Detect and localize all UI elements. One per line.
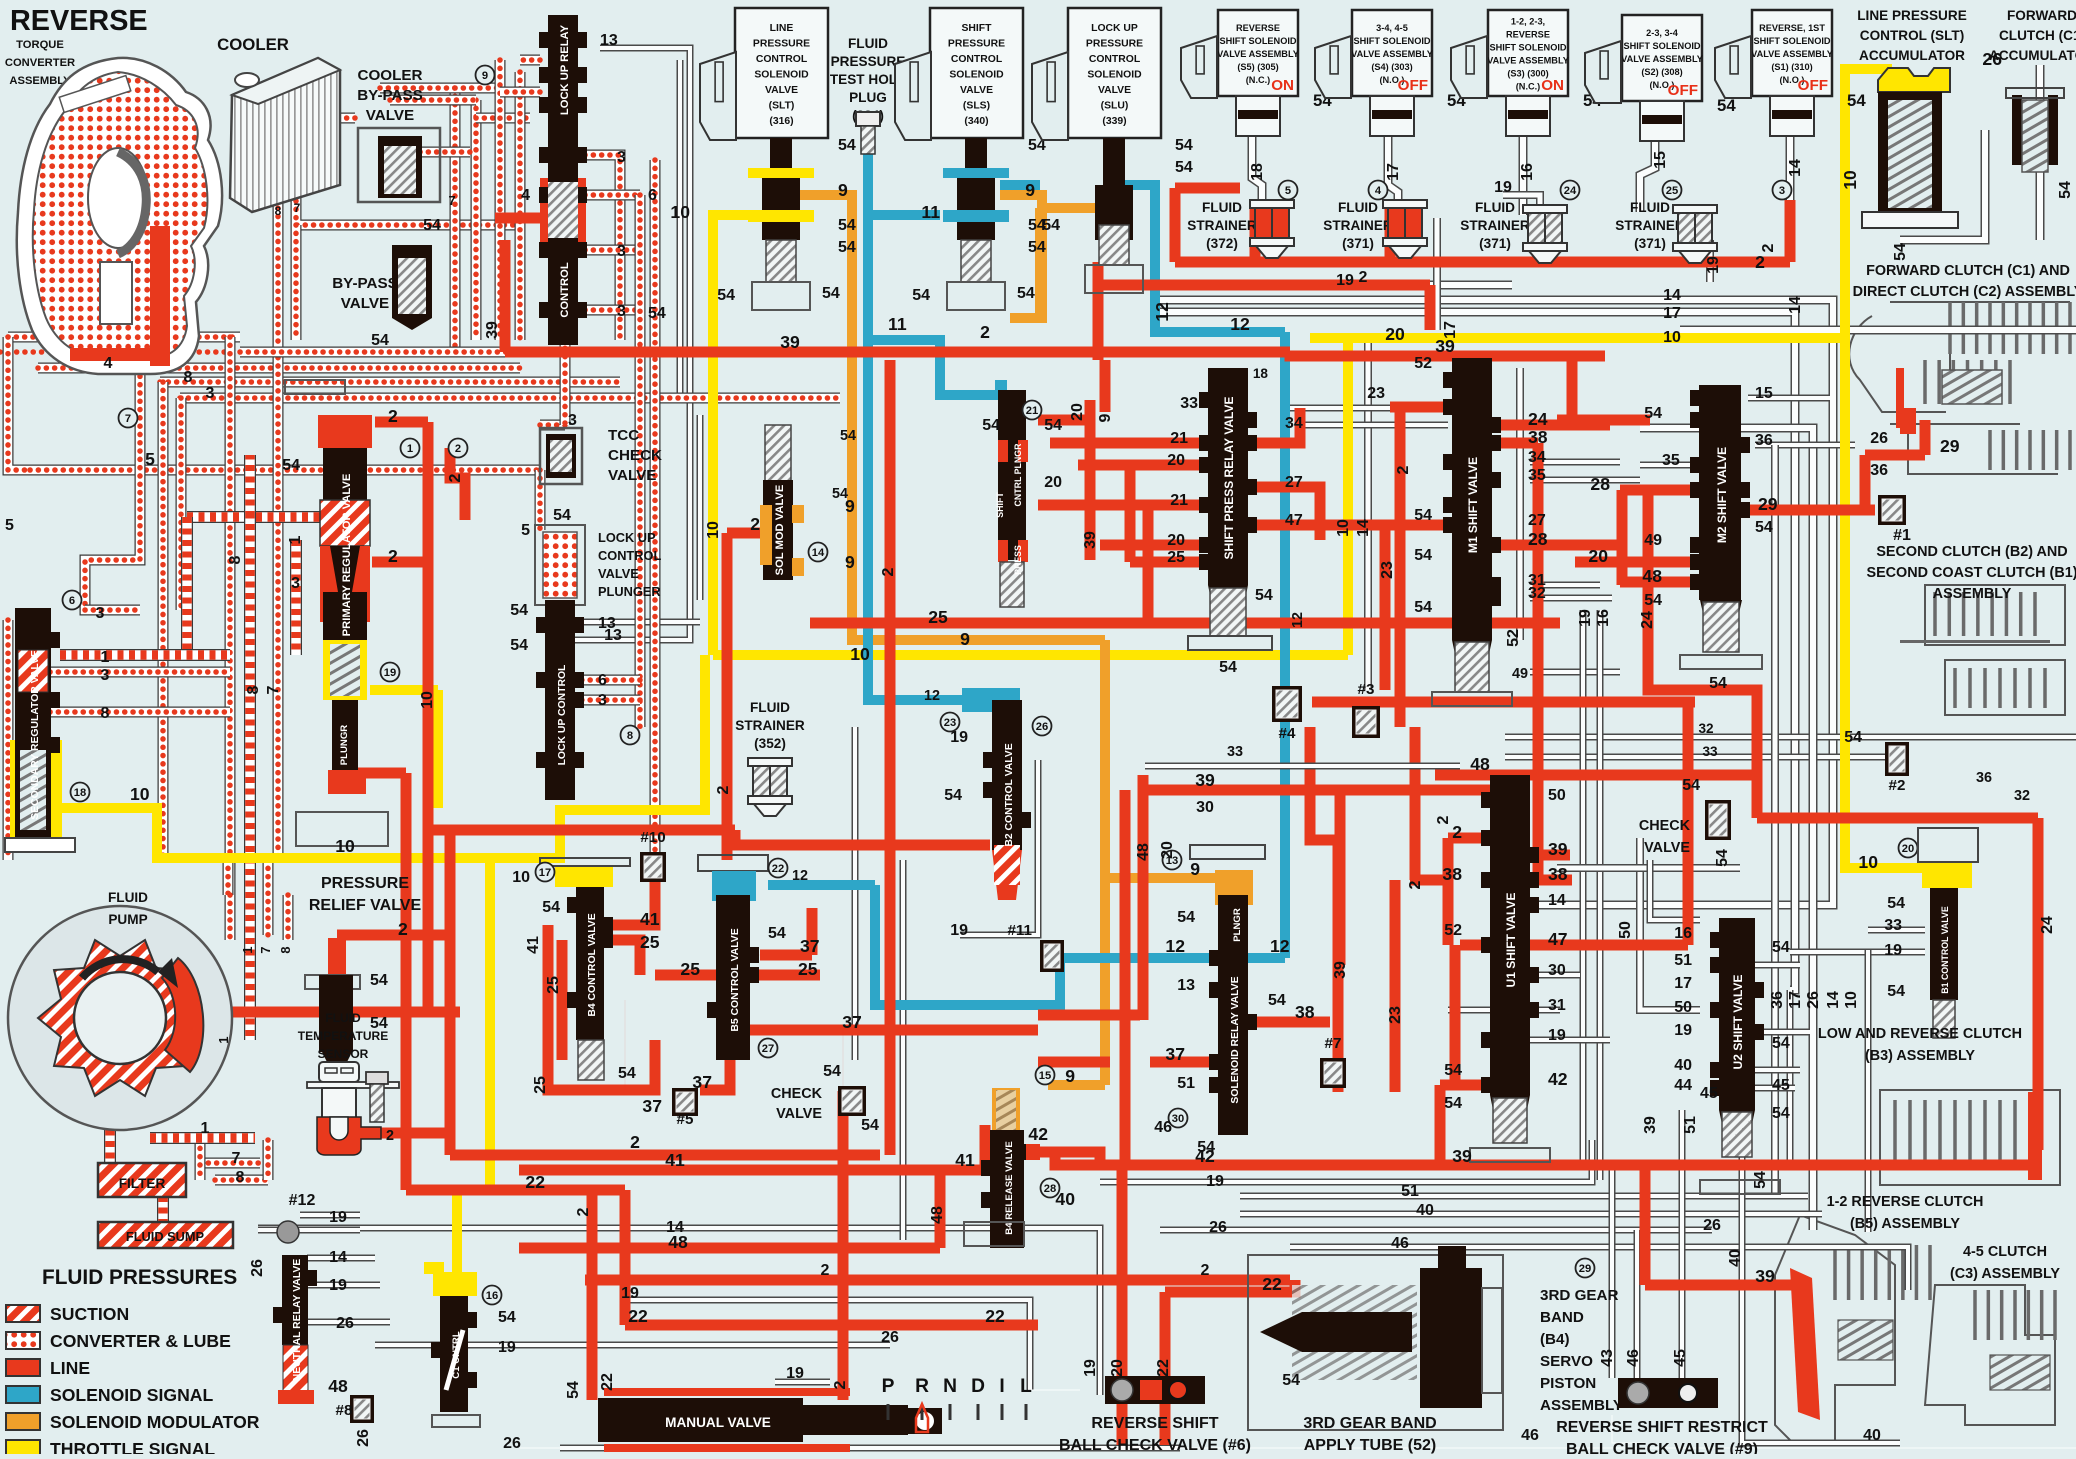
svg-text:ASSEMBLY: ASSEMBLY bbox=[1933, 586, 2012, 602]
svg-text:PUMP: PUMP bbox=[108, 912, 147, 927]
svg-text:P: P bbox=[882, 1376, 895, 1397]
svg-text:54: 54 bbox=[423, 217, 441, 234]
svg-text:54: 54 bbox=[618, 1065, 636, 1082]
svg-text:FORWARD: FORWARD bbox=[2007, 8, 2076, 23]
svg-text:2: 2 bbox=[1395, 465, 1412, 474]
svg-text:CONVERTER & LUBE: CONVERTER & LUBE bbox=[50, 1331, 231, 1351]
svg-text:STRAINER: STRAINER bbox=[1460, 218, 1530, 233]
svg-text:VALVE: VALVE bbox=[960, 85, 993, 96]
svg-text:7: 7 bbox=[294, 201, 301, 215]
svg-text:10: 10 bbox=[1858, 852, 1878, 872]
svg-text:20: 20 bbox=[1588, 546, 1608, 566]
svg-text:7: 7 bbox=[258, 946, 273, 953]
svg-text:37: 37 bbox=[842, 1012, 862, 1032]
svg-text:26: 26 bbox=[355, 1429, 372, 1447]
svg-text:SOL MOD VALVE: SOL MOD VALVE bbox=[774, 484, 786, 575]
svg-text:22: 22 bbox=[628, 1306, 648, 1326]
svg-text:LOW AND REVERSE CLUTCH: LOW AND REVERSE CLUTCH bbox=[1818, 1026, 2022, 1042]
svg-text:(S2) (308): (S2) (308) bbox=[1641, 67, 1682, 77]
svg-text:BALL CHECK VALVE (#6): BALL CHECK VALVE (#6) bbox=[1059, 1437, 1251, 1454]
svg-text:2-3, 3-4: 2-3, 3-4 bbox=[1646, 28, 1679, 38]
svg-text:54: 54 bbox=[1414, 599, 1432, 616]
svg-text:30: 30 bbox=[1172, 1113, 1184, 1125]
svg-text:(B3) ASSEMBLY: (B3) ASSEMBLY bbox=[1865, 1048, 1975, 1064]
svg-text:ACCUMULATOR: ACCUMULATOR bbox=[1989, 48, 2076, 63]
svg-text:54: 54 bbox=[1847, 91, 1866, 110]
svg-text:MANUAL VALVE: MANUAL VALVE bbox=[665, 1415, 771, 1430]
svg-text:#1: #1 bbox=[1893, 527, 1911, 544]
svg-text:26: 26 bbox=[1805, 991, 1822, 1009]
svg-text:19: 19 bbox=[1206, 1173, 1224, 1190]
svg-text:19: 19 bbox=[1577, 609, 1594, 627]
svg-text:8: 8 bbox=[101, 705, 110, 722]
svg-text:VALVE ASSEMBLY: VALVE ASSEMBLY bbox=[1217, 49, 1299, 59]
svg-text:#7: #7 bbox=[1325, 1035, 1342, 1052]
svg-text:7: 7 bbox=[125, 413, 131, 425]
svg-text:(S4) (303): (S4) (303) bbox=[1371, 62, 1412, 72]
svg-text:26: 26 bbox=[881, 1329, 899, 1346]
svg-text:PRESSURE: PRESSURE bbox=[321, 875, 409, 892]
svg-text:51: 51 bbox=[1674, 952, 1692, 969]
svg-text:SOLENOID: SOLENOID bbox=[1087, 70, 1142, 81]
svg-text:41: 41 bbox=[665, 1150, 685, 1170]
svg-text:(N.C.): (N.C.) bbox=[1246, 75, 1271, 85]
svg-text:CHECK: CHECK bbox=[608, 447, 662, 464]
svg-text:CONTROL: CONTROL bbox=[559, 262, 571, 317]
svg-text:22: 22 bbox=[772, 863, 784, 875]
svg-text:SOLENOID: SOLENOID bbox=[754, 70, 809, 81]
svg-text:PLUNGER: PLUNGER bbox=[598, 584, 661, 599]
svg-text:#3: #3 bbox=[1358, 681, 1375, 698]
svg-text:2: 2 bbox=[388, 546, 398, 566]
svg-text:19: 19 bbox=[1494, 179, 1512, 196]
svg-text:17: 17 bbox=[1385, 163, 1402, 181]
svg-text:54: 54 bbox=[370, 972, 388, 989]
svg-text:2: 2 bbox=[832, 1380, 849, 1389]
svg-text:19: 19 bbox=[1884, 942, 1902, 959]
svg-text:B5 CONTROL VALVE: B5 CONTROL VALVE bbox=[730, 928, 741, 1031]
svg-text:54: 54 bbox=[510, 637, 528, 654]
svg-text:2: 2 bbox=[455, 443, 461, 455]
svg-text:50: 50 bbox=[1674, 999, 1692, 1016]
svg-text:36: 36 bbox=[1976, 770, 1992, 786]
svg-text:54: 54 bbox=[1844, 729, 1862, 746]
svg-text:9: 9 bbox=[960, 629, 970, 649]
svg-text:23: 23 bbox=[1387, 1006, 1404, 1024]
svg-text:20: 20 bbox=[1167, 452, 1185, 469]
svg-text:38: 38 bbox=[1295, 1002, 1315, 1022]
svg-text:7: 7 bbox=[232, 1150, 241, 1167]
svg-text:(352): (352) bbox=[754, 736, 786, 751]
svg-text:54: 54 bbox=[717, 287, 735, 304]
svg-text:CONTROL: CONTROL bbox=[951, 54, 1003, 65]
svg-text:36: 36 bbox=[1870, 462, 1888, 479]
svg-text:SHIFT SOLENOID: SHIFT SOLENOID bbox=[1623, 41, 1700, 51]
svg-text:39: 39 bbox=[1195, 770, 1215, 790]
svg-text:10: 10 bbox=[419, 691, 436, 709]
svg-text:FLUID SUMP: FLUID SUMP bbox=[126, 1229, 205, 1244]
svg-text:37: 37 bbox=[800, 936, 820, 956]
svg-text:10: 10 bbox=[1840, 170, 1860, 190]
svg-text:C1 CNTRL: C1 CNTRL bbox=[451, 1331, 462, 1379]
svg-text:16: 16 bbox=[1595, 609, 1612, 627]
svg-text:SECONDARY REGULATOR VALVE: SECONDARY REGULATOR VALVE bbox=[30, 650, 41, 820]
svg-text:47: 47 bbox=[1285, 512, 1303, 529]
svg-text:APPLY TUBE (52): APPLY TUBE (52) bbox=[1304, 1437, 1436, 1454]
svg-text:(B4): (B4) bbox=[1540, 1331, 1570, 1348]
svg-text:10: 10 bbox=[1335, 519, 1352, 537]
svg-text:CHECK: CHECK bbox=[1639, 818, 1691, 834]
svg-text:OFF: OFF bbox=[1668, 82, 1698, 99]
svg-text:54: 54 bbox=[1644, 592, 1662, 609]
svg-text:54: 54 bbox=[1892, 243, 1909, 261]
svg-text:48: 48 bbox=[1642, 566, 1662, 586]
svg-text:9: 9 bbox=[1190, 859, 1200, 879]
svg-text:19: 19 bbox=[1705, 256, 1722, 274]
svg-text:2: 2 bbox=[386, 1128, 394, 1144]
svg-text:12: 12 bbox=[1270, 936, 1290, 956]
svg-text:L: L bbox=[1020, 1376, 1032, 1397]
svg-text:21: 21 bbox=[1170, 430, 1188, 447]
svg-text:26: 26 bbox=[1209, 1219, 1227, 1236]
svg-text:#11: #11 bbox=[1007, 922, 1032, 939]
svg-text:VALVE ASSEMBLY: VALVE ASSEMBLY bbox=[1487, 56, 1569, 66]
svg-text:VALVE ASSEMBLY: VALVE ASSEMBLY bbox=[1621, 54, 1703, 64]
svg-text:OFF: OFF bbox=[1398, 77, 1428, 94]
svg-text:5: 5 bbox=[521, 522, 530, 539]
svg-text:22: 22 bbox=[599, 1373, 616, 1391]
svg-text:VALVE: VALVE bbox=[608, 467, 656, 484]
svg-text:OFF: OFF bbox=[1798, 77, 1828, 94]
svg-text:17: 17 bbox=[539, 867, 551, 879]
svg-text:LINE: LINE bbox=[770, 23, 794, 34]
svg-text:54: 54 bbox=[1755, 519, 1773, 536]
svg-text:SECOND COAST CLUTCH (B1): SECOND COAST CLUTCH (B1) bbox=[1866, 565, 2076, 581]
svg-text:STRAINER: STRAINER bbox=[1187, 218, 1257, 233]
svg-text:5: 5 bbox=[5, 517, 14, 534]
svg-text:#4: #4 bbox=[1279, 725, 1296, 742]
svg-text:54: 54 bbox=[1028, 239, 1046, 256]
svg-text:2: 2 bbox=[715, 785, 732, 794]
svg-text:54: 54 bbox=[912, 287, 930, 304]
svg-text:54: 54 bbox=[861, 1117, 879, 1134]
svg-text:48: 48 bbox=[1470, 754, 1490, 774]
svg-text:2: 2 bbox=[980, 322, 990, 342]
svg-text:ON: ON bbox=[1541, 77, 1564, 94]
svg-text:38: 38 bbox=[1548, 864, 1568, 884]
svg-text:39: 39 bbox=[1332, 961, 1349, 979]
svg-text:2: 2 bbox=[880, 567, 897, 576]
svg-text:SUCTION: SUCTION bbox=[50, 1304, 129, 1324]
svg-text:25: 25 bbox=[532, 1076, 549, 1094]
svg-text:12: 12 bbox=[792, 868, 808, 884]
svg-text:45: 45 bbox=[1772, 1077, 1790, 1094]
svg-text:9: 9 bbox=[1025, 180, 1035, 200]
svg-text:50: 50 bbox=[1617, 921, 1634, 939]
svg-text:12: 12 bbox=[1165, 936, 1185, 956]
svg-text:10: 10 bbox=[512, 869, 530, 886]
svg-text:29: 29 bbox=[1758, 494, 1778, 514]
svg-text:CONVERTER: CONVERTER bbox=[5, 57, 75, 69]
svg-text:10: 10 bbox=[335, 836, 355, 856]
svg-text:1-2 REVERSE CLUTCH: 1-2 REVERSE CLUTCH bbox=[1827, 1194, 1984, 1210]
svg-text:N: N bbox=[943, 1376, 957, 1397]
svg-text:#8: #8 bbox=[336, 1402, 353, 1419]
svg-text:(371): (371) bbox=[1634, 236, 1666, 251]
svg-text:54: 54 bbox=[542, 899, 560, 916]
svg-text:VALVE ASSEMBLY: VALVE ASSEMBLY bbox=[1351, 49, 1433, 59]
svg-text:51: 51 bbox=[1177, 1075, 1195, 1092]
svg-text:27: 27 bbox=[1285, 474, 1303, 491]
svg-text:40: 40 bbox=[1416, 1202, 1434, 1219]
svg-text:1: 1 bbox=[287, 535, 304, 544]
svg-text:19: 19 bbox=[1082, 1359, 1099, 1377]
svg-text:10: 10 bbox=[1663, 329, 1681, 346]
svg-text:41: 41 bbox=[525, 936, 542, 954]
svg-text:35: 35 bbox=[1662, 452, 1680, 469]
svg-text:M2 SHIFT VALVE: M2 SHIFT VALVE bbox=[1715, 447, 1729, 543]
svg-text:LINE PRESSURE: LINE PRESSURE bbox=[1857, 8, 1967, 23]
svg-text:22: 22 bbox=[985, 1306, 1005, 1326]
svg-text:9: 9 bbox=[482, 70, 488, 82]
svg-text:8: 8 bbox=[275, 204, 282, 218]
svg-text:13: 13 bbox=[1177, 977, 1195, 994]
svg-text:18: 18 bbox=[74, 787, 86, 799]
svg-text:BY-PASS: BY-PASS bbox=[332, 275, 398, 292]
svg-text:54: 54 bbox=[1175, 137, 1193, 154]
svg-text:COOLER: COOLER bbox=[217, 35, 289, 54]
svg-text:2: 2 bbox=[1755, 252, 1765, 272]
svg-text:24: 24 bbox=[2039, 916, 2056, 934]
svg-text:49: 49 bbox=[1512, 666, 1528, 682]
svg-text:3: 3 bbox=[617, 303, 626, 320]
svg-text:14: 14 bbox=[1787, 296, 1804, 314]
svg-text:CNTRL PLNGR: CNTRL PLNGR bbox=[1013, 443, 1023, 507]
svg-text:39: 39 bbox=[1452, 1146, 1472, 1166]
svg-text:39: 39 bbox=[1082, 531, 1099, 549]
svg-text:48: 48 bbox=[668, 1232, 688, 1252]
svg-text:PRESSURE: PRESSURE bbox=[1086, 39, 1143, 50]
svg-text:48: 48 bbox=[929, 1206, 946, 1224]
svg-text:#2: #2 bbox=[1889, 777, 1906, 794]
svg-text:VALVE: VALVE bbox=[1098, 85, 1131, 96]
svg-text:1: 1 bbox=[216, 1036, 231, 1043]
svg-text:27: 27 bbox=[762, 1043, 774, 1055]
svg-text:21: 21 bbox=[1170, 492, 1188, 509]
svg-text:26: 26 bbox=[1703, 1217, 1721, 1234]
svg-text:#5: #5 bbox=[677, 1111, 694, 1128]
svg-text:U1 SHIFT VALVE: U1 SHIFT VALVE bbox=[1504, 893, 1518, 988]
svg-text:9: 9 bbox=[845, 552, 855, 572]
svg-text:52: 52 bbox=[1444, 922, 1462, 939]
svg-text:54: 54 bbox=[1714, 849, 1731, 867]
svg-text:51: 51 bbox=[1401, 1183, 1419, 1200]
svg-text:54: 54 bbox=[1042, 217, 1060, 234]
svg-text:30: 30 bbox=[1548, 962, 1566, 979]
svg-text:54: 54 bbox=[840, 428, 856, 444]
svg-text:54: 54 bbox=[1772, 1035, 1790, 1052]
svg-text:15: 15 bbox=[1652, 151, 1669, 169]
svg-text:PRESSURE: PRESSURE bbox=[753, 39, 810, 50]
svg-text:PLUG: PLUG bbox=[849, 90, 887, 105]
svg-text:46: 46 bbox=[1625, 1349, 1642, 1367]
svg-text:SHIFT: SHIFT bbox=[961, 23, 992, 34]
svg-text:2: 2 bbox=[630, 1132, 640, 1152]
svg-text:26: 26 bbox=[336, 1315, 354, 1332]
svg-text:(316): (316) bbox=[769, 116, 793, 127]
svg-text:FLUID: FLUID bbox=[1202, 200, 1242, 215]
svg-text:23: 23 bbox=[1379, 561, 1396, 579]
svg-text:D: D bbox=[971, 1376, 985, 1397]
svg-text:CONTROL: CONTROL bbox=[756, 54, 808, 65]
svg-text:(S5) (305): (S5) (305) bbox=[1237, 62, 1278, 72]
svg-text:28: 28 bbox=[1528, 529, 1548, 549]
svg-text:(N.C.): (N.C.) bbox=[1516, 82, 1541, 92]
svg-text:R: R bbox=[915, 1376, 929, 1397]
svg-text:43: 43 bbox=[1599, 1349, 1616, 1367]
svg-text:17: 17 bbox=[1674, 975, 1692, 992]
svg-text:PISTON: PISTON bbox=[1540, 1375, 1596, 1392]
svg-text:REVERSE: REVERSE bbox=[10, 5, 148, 37]
svg-text:3RD GEAR BAND: 3RD GEAR BAND bbox=[1303, 1415, 1436, 1432]
svg-text:SENSOR: SENSOR bbox=[318, 1047, 369, 1061]
svg-text:10: 10 bbox=[130, 784, 150, 804]
svg-text:54: 54 bbox=[822, 285, 840, 302]
svg-text:26: 26 bbox=[1982, 49, 2002, 69]
svg-text:SOLENOID MODULATOR: SOLENOID MODULATOR bbox=[50, 1412, 260, 1432]
svg-text:33: 33 bbox=[1884, 917, 1902, 934]
svg-text:54: 54 bbox=[1017, 285, 1035, 302]
svg-text:PRESS: PRESS bbox=[1013, 545, 1023, 575]
svg-text:LOCK UP: LOCK UP bbox=[1091, 23, 1138, 34]
svg-text:22: 22 bbox=[1155, 1359, 1172, 1377]
svg-text:21: 21 bbox=[1026, 405, 1038, 417]
svg-text:2: 2 bbox=[1201, 1262, 1210, 1279]
svg-text:ASSEMBLY: ASSEMBLY bbox=[1540, 1397, 1623, 1414]
svg-text:2: 2 bbox=[388, 406, 398, 426]
svg-text:3-4, 4-5: 3-4, 4-5 bbox=[1376, 23, 1408, 33]
svg-text:49: 49 bbox=[1644, 532, 1662, 549]
svg-text:54: 54 bbox=[823, 1063, 841, 1080]
svg-text:FLUID PRESSURES: FLUID PRESSURES bbox=[42, 1266, 237, 1289]
svg-text:8: 8 bbox=[236, 1169, 245, 1186]
svg-text:46: 46 bbox=[1521, 1427, 1539, 1444]
svg-text:6: 6 bbox=[648, 187, 657, 204]
svg-text:54: 54 bbox=[944, 787, 962, 804]
svg-text:20: 20 bbox=[1044, 474, 1062, 491]
svg-text:54: 54 bbox=[648, 305, 666, 322]
svg-text:44: 44 bbox=[1674, 1077, 1692, 1094]
svg-text:VALVE: VALVE bbox=[341, 295, 389, 312]
svg-text:U2 SHIFT VALVE: U2 SHIFT VALVE bbox=[1731, 975, 1745, 1070]
svg-text:1: 1 bbox=[101, 649, 110, 666]
svg-text:VALVE: VALVE bbox=[598, 566, 639, 581]
svg-text:25: 25 bbox=[798, 959, 818, 979]
svg-text:(371): (371) bbox=[1479, 236, 1511, 251]
svg-text:B2 CONTROL VALVE: B2 CONTROL VALVE bbox=[1004, 743, 1015, 846]
svg-text:REVERSE: REVERSE bbox=[1236, 23, 1280, 33]
svg-text:29: 29 bbox=[1940, 436, 1960, 456]
svg-text:25: 25 bbox=[640, 932, 660, 952]
svg-text:(371): (371) bbox=[1342, 236, 1374, 251]
svg-text:32: 32 bbox=[1528, 585, 1546, 602]
svg-text:27: 27 bbox=[1528, 512, 1546, 529]
svg-text:14: 14 bbox=[1825, 991, 1842, 1009]
svg-text:9: 9 bbox=[845, 496, 855, 516]
svg-text:(SLU): (SLU) bbox=[1101, 101, 1129, 112]
svg-text:26: 26 bbox=[503, 1435, 521, 1452]
svg-text:20: 20 bbox=[1109, 1359, 1126, 1377]
svg-text:3: 3 bbox=[101, 667, 110, 684]
svg-text:54: 54 bbox=[1772, 939, 1790, 956]
svg-text:39: 39 bbox=[1755, 1266, 1775, 1286]
svg-text:29: 29 bbox=[1579, 1263, 1591, 1275]
svg-text:SOLENOID: SOLENOID bbox=[949, 70, 1004, 81]
svg-text:LINE: LINE bbox=[50, 1358, 90, 1378]
svg-text:12: 12 bbox=[1230, 314, 1250, 334]
svg-text:B1 CONTROL VALVE: B1 CONTROL VALVE bbox=[1940, 906, 1950, 994]
svg-text:6: 6 bbox=[598, 672, 607, 689]
svg-text:54: 54 bbox=[2057, 181, 2074, 199]
svg-text:24: 24 bbox=[1639, 611, 1656, 629]
svg-text:15: 15 bbox=[1039, 1070, 1051, 1082]
svg-text:54: 54 bbox=[1682, 777, 1700, 794]
svg-text:34: 34 bbox=[1528, 449, 1546, 466]
svg-text:25: 25 bbox=[1666, 185, 1678, 197]
svg-text:25: 25 bbox=[1167, 549, 1185, 566]
svg-text:SHIFT SOLENOID: SHIFT SOLENOID bbox=[1353, 36, 1430, 46]
svg-text:2: 2 bbox=[1452, 822, 1462, 842]
svg-text:8: 8 bbox=[627, 730, 633, 742]
svg-text:CONTROL (SLT): CONTROL (SLT) bbox=[1860, 28, 1964, 43]
svg-text:1: 1 bbox=[407, 443, 413, 455]
svg-text:THROTTLE SIGNAL: THROTTLE SIGNAL bbox=[50, 1439, 215, 1454]
svg-text:(372): (372) bbox=[1206, 236, 1238, 251]
svg-text:RELIEF VALVE: RELIEF VALVE bbox=[309, 897, 422, 914]
svg-text:2: 2 bbox=[821, 1262, 830, 1279]
svg-text:18: 18 bbox=[1249, 163, 1266, 181]
svg-text:39: 39 bbox=[484, 321, 501, 339]
svg-text:3: 3 bbox=[617, 149, 626, 166]
svg-text:25: 25 bbox=[680, 959, 700, 979]
svg-text:51: 51 bbox=[1682, 1116, 1699, 1134]
svg-text:54: 54 bbox=[1219, 659, 1237, 676]
svg-text:52: 52 bbox=[1505, 629, 1522, 647]
svg-text:54: 54 bbox=[1414, 507, 1432, 524]
svg-text:10: 10 bbox=[850, 644, 870, 664]
svg-text:B4 RELEASE VALVE: B4 RELEASE VALVE bbox=[1004, 1141, 1015, 1235]
svg-text:54: 54 bbox=[1444, 1095, 1462, 1112]
svg-text:CLUTCH (C1): CLUTCH (C1) bbox=[1999, 28, 2076, 43]
svg-text:22: 22 bbox=[525, 1172, 545, 1192]
svg-text:34: 34 bbox=[1285, 415, 1303, 432]
svg-text:16: 16 bbox=[1674, 925, 1692, 942]
svg-text:40: 40 bbox=[1674, 1057, 1692, 1074]
svg-text:41: 41 bbox=[955, 1150, 975, 1170]
svg-text:7: 7 bbox=[265, 685, 282, 694]
svg-text:26: 26 bbox=[1036, 721, 1048, 733]
svg-text:30: 30 bbox=[1196, 799, 1214, 816]
svg-text:28: 28 bbox=[1044, 1183, 1056, 1195]
svg-text:14: 14 bbox=[1663, 287, 1681, 304]
svg-text:FLUID: FLUID bbox=[1338, 200, 1378, 215]
svg-text:PLUNGR: PLUNGR bbox=[339, 725, 350, 766]
svg-text:23: 23 bbox=[1367, 385, 1385, 402]
svg-text:54: 54 bbox=[1444, 1062, 1462, 1079]
svg-text:#12: #12 bbox=[289, 1192, 316, 1209]
svg-text:3: 3 bbox=[206, 385, 215, 402]
svg-text:25: 25 bbox=[928, 607, 948, 627]
